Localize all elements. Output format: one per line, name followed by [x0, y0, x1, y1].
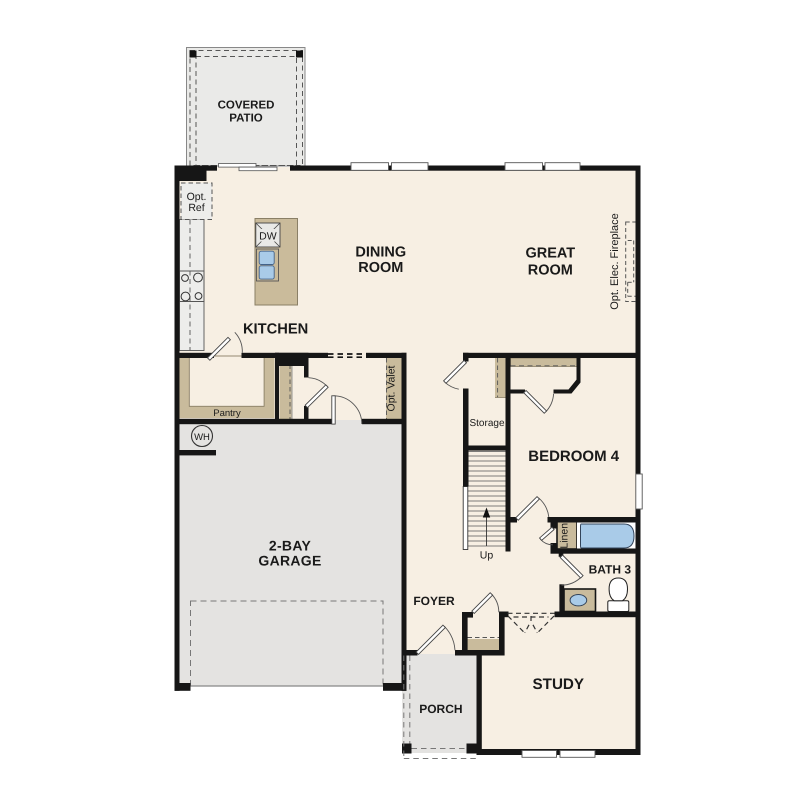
- svg-text:DINING: DINING: [355, 244, 406, 260]
- svg-text:PATIO: PATIO: [229, 113, 262, 125]
- svg-text:Ref: Ref: [188, 202, 204, 214]
- svg-text:COVERED: COVERED: [218, 100, 275, 112]
- svg-text:ROOM: ROOM: [528, 262, 573, 278]
- svg-text:Up: Up: [480, 550, 494, 562]
- svg-text:2-BAY: 2-BAY: [269, 538, 312, 554]
- svg-text:WH: WH: [194, 432, 210, 443]
- svg-text:BATH 3: BATH 3: [589, 562, 632, 576]
- svg-text:BEDROOM 4: BEDROOM 4: [528, 448, 620, 465]
- svg-text:Storage: Storage: [469, 418, 504, 429]
- svg-text:FOYER: FOYER: [413, 594, 455, 608]
- svg-text:Opt. Elec. Fireplace: Opt. Elec. Fireplace: [609, 213, 621, 310]
- svg-text:ROOM: ROOM: [358, 260, 403, 276]
- svg-text:Opt. Valet: Opt. Valet: [386, 365, 398, 411]
- svg-text:STUDY: STUDY: [533, 676, 584, 693]
- svg-text:Pantry: Pantry: [213, 408, 241, 419]
- svg-text:DW: DW: [259, 231, 277, 243]
- svg-text:Linen: Linen: [559, 523, 571, 549]
- svg-text:GREAT: GREAT: [525, 245, 575, 261]
- svg-text:PORCH: PORCH: [419, 702, 462, 716]
- svg-text:GARAGE: GARAGE: [258, 552, 321, 568]
- svg-text:KITCHEN: KITCHEN: [243, 322, 308, 338]
